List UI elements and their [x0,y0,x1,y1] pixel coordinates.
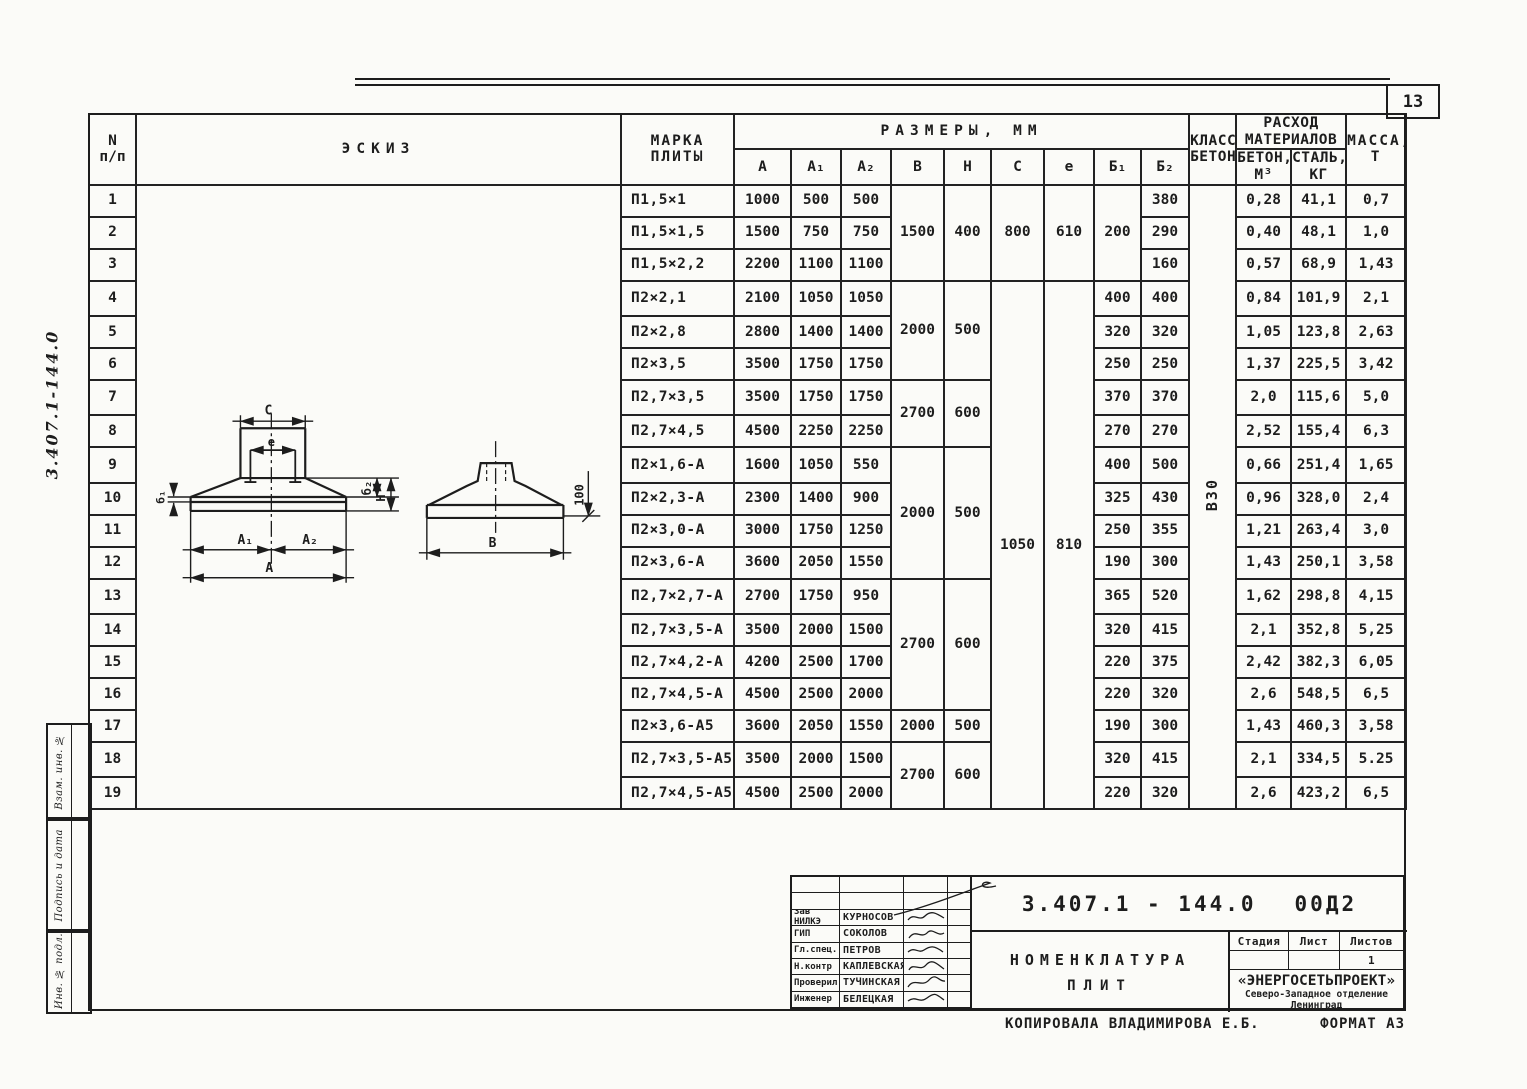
cell-b2: 375 [1141,646,1189,678]
signature-scribble [906,943,946,957]
cell-b1: 370 [1094,380,1141,415]
stamp-role: Проверил [792,975,840,991]
cell-concrete: 2,1 [1236,742,1291,777]
stamp-role: Н.контр [792,959,840,975]
dim-label-b2: б₂ [360,481,374,495]
cell-a1: 1400 [791,483,841,515]
cell-steel: 548,5 [1291,678,1346,710]
cell-mark: П2,7×4,5-А5 [621,777,734,809]
cell-a2: 2000 [841,678,891,710]
document-number: 3.407.1 - 144.0 00Д2 [972,877,1407,932]
cell-a2: 1550 [841,710,891,742]
cell-mark: П2,7×4,2-А [621,646,734,678]
cell-mark: П2,7×4,5 [621,415,734,447]
cell-h-merged: 600 [944,742,991,809]
table-row: 1 [89,185,1406,217]
col-header-steel: СТАЛЬ,КГ [1291,149,1346,184]
col-header-b: В [891,149,944,184]
cell-b1: 270 [1094,415,1141,447]
cell-a1: 1100 [791,249,841,281]
cell-mass: 1,65 [1346,447,1406,482]
top-trim-line [355,78,1390,86]
cell-n: 5 [89,316,136,348]
col-header-a1: А₁ [791,149,841,184]
cell-steel: 352,8 [1291,614,1346,646]
col-header-dimensions: РАЗМЕРЫ, ММ [734,114,1189,149]
cell-b2: 300 [1141,547,1189,579]
cell-mark: П2,7×3,5-А [621,614,734,646]
stamp-name: БЕЛЕЦКАЯ [840,992,904,1008]
cell-mass: 6,5 [1346,678,1406,710]
cell-steel: 115,6 [1291,380,1346,415]
cell-c-merged: 1050 [991,281,1044,810]
cell-n: 10 [89,483,136,515]
cell-a: 4200 [734,646,791,678]
cell-a2: 1500 [841,742,891,777]
cell-h-merged: 600 [944,380,991,447]
cell-b2: 415 [1141,742,1189,777]
cell-a: 1600 [734,447,791,482]
cell-a: 4500 [734,415,791,447]
cell-b2: 320 [1141,678,1189,710]
cell-concrete: 2,42 [1236,646,1291,678]
sheet-value [1289,951,1340,969]
cell-concrete: 2,6 [1236,777,1291,809]
cell-concrete: 1,43 [1236,547,1291,579]
cell-a1: 1050 [791,447,841,482]
cell-mass: 3,42 [1346,348,1406,380]
cell-mark: П2×3,6-А [621,547,734,579]
cell-concrete: 1,21 [1236,515,1291,547]
cell-mass: 3,58 [1346,547,1406,579]
cell-steel: 460,3 [1291,710,1346,742]
title-block: Зав НИЛКЭ КУРНОСОВ ГИП СОКОЛОВ Гл.спец. … [790,875,1405,1010]
cell-a2: 1100 [841,249,891,281]
col-header-a2: А₂ [841,149,891,184]
header-row-1: Nп/п ЭСКИЗ МАРКАПЛИТЫ РАЗМЕРЫ, ММ КЛАССБ… [89,114,1406,149]
signature-scribble [906,976,946,990]
cell-a1: 750 [791,217,841,249]
signature-flourish [892,877,1012,917]
cell-a2: 500 [841,185,891,217]
organization: «ЭНЕРГОСЕТЬПРОЕКТ» Северо-Западное отдел… [1230,970,1403,1014]
title-line-2: ПЛИТ [1067,978,1133,994]
cell-a: 1500 [734,217,791,249]
cell-a2: 1400 [841,316,891,348]
cell-a2: 750 [841,217,891,249]
cell-mass: 5,25 [1346,614,1406,646]
dim-label-b: В [489,536,497,551]
cell-concrete: 0,84 [1236,281,1291,316]
cell-concrete: 2,52 [1236,415,1291,447]
cell-a1: 1750 [791,579,841,614]
cell-a1: 2500 [791,777,841,809]
margin-label: Инв. № подл. [54,933,65,1009]
cell-concrete-class: В30 [1189,185,1236,810]
cell-n: 15 [89,646,136,678]
cell-b2: 400 [1141,281,1189,316]
cell-b1: 325 [1094,483,1141,515]
cell-mark: П2×2,3-А [621,483,734,515]
cell-b1: 250 [1094,515,1141,547]
cell-b-merged: 2000 [891,710,944,742]
cell-mark: П2,7×3,5-А5 [621,742,734,777]
cell-a1: 2250 [791,415,841,447]
cell-steel: 263,4 [1291,515,1346,547]
cell-steel: 382,3 [1291,646,1346,678]
cell-n: 3 [89,249,136,281]
stamp-name: СОКОЛОВ [840,926,904,942]
stamp-role: ГИП [792,926,840,942]
cell-a: 2100 [734,281,791,316]
cell-b2: 160 [1141,249,1189,281]
drawing-title: НОМЕНКЛАТУРА ПЛИТ [972,932,1230,1012]
cell-steel: 250,1 [1291,547,1346,579]
cell-h-merged: 500 [944,710,991,742]
margin-label: Подпись и дата [54,829,65,922]
col-header-materials: РАСХОДМАТЕРИАЛОВ [1236,114,1346,149]
stamp-role: Зав НИЛКЭ [792,910,840,926]
cell-steel: 68,9 [1291,249,1346,281]
cell-n: 17 [89,710,136,742]
cell-a1: 2000 [791,614,841,646]
col-header-b1: Б₁ [1094,149,1141,184]
cell-steel: 41,1 [1291,185,1346,217]
cell-a2: 1500 [841,614,891,646]
signature-scribble [906,992,946,1006]
stamp-role: Инженер [792,992,840,1008]
cell-a1: 2500 [791,646,841,678]
cell-concrete: 1,05 [1236,316,1291,348]
dimension-lines-front [168,415,399,582]
cell-n: 12 [89,547,136,579]
cell-a: 4500 [734,777,791,809]
signature-scribble [906,960,946,974]
cell-b-merged: 2700 [891,380,944,447]
cell-a: 2800 [734,316,791,348]
cell-b2: 500 [1141,447,1189,482]
col-header-c: С [991,149,1044,184]
cell-concrete: 2,0 [1236,380,1291,415]
cell-b-merged: 2000 [891,281,944,380]
cell-h-merged: 400 [944,185,991,281]
cell-mass: 2,1 [1346,281,1406,316]
cell-n: 1 [89,185,136,217]
cell-b2: 520 [1141,579,1189,614]
stage-sheet-block: Стадия Лист Листов 1 «ЭНЕРГОСЕТЬПРОЕКТ» … [1230,932,1403,1008]
cell-a: 3600 [734,710,791,742]
cell-b2: 355 [1141,515,1189,547]
title-line-1: НОМЕНКЛАТУРА [1010,951,1190,969]
margin-box-podpis: Подпись и дата [46,817,92,933]
cell-mass: 5.25 [1346,742,1406,777]
cell-n: 19 [89,777,136,809]
cell-e-merged: 610 [1044,185,1094,281]
cell-a2: 1750 [841,348,891,380]
cell-a: 3500 [734,742,791,777]
cell-b-merged: 2700 [891,742,944,809]
cell-steel: 48,1 [1291,217,1346,249]
cell-b-merged: 2000 [891,447,944,578]
cell-n: 18 [89,742,136,777]
cell-h-merged: 600 [944,579,991,710]
dim-label-a1: А₁ [237,533,253,548]
page-number: 13 [1403,92,1423,112]
cell-concrete: 1,62 [1236,579,1291,614]
cell-steel: 123,8 [1291,316,1346,348]
cell-mass: 3,0 [1346,515,1406,547]
cell-b2: 290 [1141,217,1189,249]
cell-mark: П2×1,6-А [621,447,734,482]
cell-n: 16 [89,678,136,710]
cell-a2: 900 [841,483,891,515]
cell-b1: 220 [1094,678,1141,710]
sheets-value: 1 [1340,951,1403,969]
margin-box-vzam: Взам. инв. № [46,723,92,821]
col-header-h: Н [944,149,991,184]
cell-b1: 220 [1094,777,1141,809]
cell-mark: П2×2,1 [621,281,734,316]
cell-concrete: 1,43 [1236,710,1291,742]
cell-a: 2700 [734,579,791,614]
cell-a2: 1700 [841,646,891,678]
cell-mass: 6,3 [1346,415,1406,447]
cell-h-merged: 500 [944,281,991,380]
cell-a1: 2000 [791,742,841,777]
bottom-caption: КОПИРОВАЛА ВЛАДИМИРОВА Е.Б. ФОРМАТ А3 [1005,1016,1405,1032]
cell-concrete: 0,28 [1236,185,1291,217]
col-header-e: е [1044,149,1094,184]
cell-b2: 380 [1141,185,1189,217]
cell-mark: П2×3,0-А [621,515,734,547]
cell-mass: 2,4 [1346,483,1406,515]
col-header-concrete-class: КЛАССБЕТОНА [1189,114,1236,185]
org-name: «ЭНЕРГОСЕТЬПРОЕКТ» [1238,973,1395,989]
col-header-mass: МАССА,Т [1346,114,1406,185]
cell-mass: 6,5 [1346,777,1406,809]
cell-b2: 370 [1141,380,1189,415]
sheets-header: Листов [1340,932,1403,950]
cell-a2: 2000 [841,777,891,809]
cell-mass: 0,7 [1346,185,1406,217]
cell-b1: 250 [1094,348,1141,380]
cell-b1: 190 [1094,710,1141,742]
cell-mass: 3,58 [1346,710,1406,742]
cell-a: 3600 [734,547,791,579]
cell-concrete: 2,6 [1236,678,1291,710]
stamp-name: ПЕТРОВ [840,943,904,959]
copied-by: КОПИРОВАЛА ВЛАДИМИРОВА Е.Б. [1005,1016,1260,1032]
stamp-role: Гл.спец. [792,943,840,959]
cell-steel: 298,8 [1291,579,1346,614]
cell-b1: 400 [1094,281,1141,316]
cell-mark: П2×2,8 [621,316,734,348]
stage-value [1230,951,1289,969]
cell-n: 7 [89,380,136,415]
dim-label-b1: б₁ [155,490,168,503]
col-header-number: Nп/п [89,114,136,185]
cell-a: 2200 [734,249,791,281]
cell-a: 1000 [734,185,791,217]
cell-mass: 1,0 [1346,217,1406,249]
doc-number-text: 3.407.1 - 144.0 [1022,892,1257,916]
cell-concrete: 0,96 [1236,483,1291,515]
nomenclature-table: Nп/п ЭСКИЗ МАРКАПЛИТЫ РАЗМЕРЫ, ММ КЛАССБ… [88,113,1407,810]
cell-concrete: 1,37 [1236,348,1291,380]
cell-a1: 2050 [791,547,841,579]
dim-label-a2: А₂ [302,533,318,548]
margin-box-inv: Инв. № подл. [46,929,92,1014]
cell-mark: П2×3,6-А5 [621,710,734,742]
cell-b2: 430 [1141,483,1189,515]
cell-mark: П1,5×2,2 [621,249,734,281]
cell-a2: 1750 [841,380,891,415]
cell-b1-merged: 200 [1094,185,1141,281]
cell-n: 9 [89,447,136,482]
cell-b2: 270 [1141,415,1189,447]
cell-n: 2 [89,217,136,249]
cell-a2: 1550 [841,547,891,579]
scanned-drawing-sheet: 13 3.407.1-144.0 Взам. инв. № Подпись и … [0,0,1527,1089]
cell-b1: 320 [1094,614,1141,646]
cell-steel: 155,4 [1291,415,1346,447]
cell-b2: 320 [1141,316,1189,348]
cell-mark: П1,5×1 [621,185,734,217]
cell-a1: 1400 [791,316,841,348]
cell-a2: 2250 [841,415,891,447]
cell-a1: 1750 [791,515,841,547]
cell-concrete: 0,57 [1236,249,1291,281]
cell-a1: 1050 [791,281,841,316]
cell-a: 3000 [734,515,791,547]
cell-b1: 220 [1094,646,1141,678]
dim-label-a: А [265,560,273,575]
dim-label-c: С [264,403,272,418]
stamp-name: КАПЛЕВСКАЯ [840,959,904,975]
cell-c-merged: 800 [991,185,1044,281]
cell-steel: 251,4 [1291,447,1346,482]
cell-a1: 2500 [791,678,841,710]
cell-b-merged: 1500 [891,185,944,281]
cell-b2: 250 [1141,348,1189,380]
dim-label-e: е [268,435,275,449]
cell-mark: П2,7×2,7-А [621,579,734,614]
cell-b1: 400 [1094,447,1141,482]
cell-mark: П2,7×4,5-А [621,678,734,710]
cell-n: 13 [89,579,136,614]
dim-label-h: Н [374,494,388,501]
cell-a: 3500 [734,348,791,380]
cell-mark: П2×3,5 [621,348,734,380]
cell-e-merged: 810 [1044,281,1094,810]
cell-a: 4500 [734,678,791,710]
cell-b-merged: 2700 [891,579,944,710]
stamp-name: ТУЧИНСКАЯ [840,975,904,991]
cell-steel: 101,9 [1291,281,1346,316]
cell-mass: 2,63 [1346,316,1406,348]
cell-b2: 300 [1141,710,1189,742]
cell-mark: П2,7×3,5 [621,380,734,415]
cell-concrete: 2,1 [1236,614,1291,646]
cell-b1: 365 [1094,579,1141,614]
cell-b2: 415 [1141,614,1189,646]
cell-a: 3500 [734,380,791,415]
org-branch: Северо-Западное отделение [1245,989,1388,1000]
cell-mass: 6,05 [1346,646,1406,678]
cell-n: 6 [89,348,136,380]
col-header-concrete: БЕТОН,М³ [1236,149,1291,184]
cell-steel: 423,2 [1291,777,1346,809]
cell-n: 4 [89,281,136,316]
cell-b1: 320 [1094,742,1141,777]
cell-b1: 190 [1094,547,1141,579]
col-header-b2: Б₂ [1141,149,1189,184]
cell-a2: 1250 [841,515,891,547]
cell-a1: 1750 [791,348,841,380]
dim-label-100: 100 [572,484,586,506]
sheet-header: Лист [1289,932,1340,950]
cell-mark: П1,5×1,5 [621,217,734,249]
cell-a: 3500 [734,614,791,646]
cell-h-merged: 500 [944,447,991,578]
col-header-sketch: ЭСКИЗ [136,114,621,185]
cell-n: 11 [89,515,136,547]
cell-n: 8 [89,415,136,447]
cell-a2: 550 [841,447,891,482]
doc-code-text: 00Д2 [1295,892,1358,916]
cell-a1: 1750 [791,380,841,415]
cell-concrete: 0,66 [1236,447,1291,482]
handwritten-doc-number: 3.407.1-144.0 [43,315,62,495]
cell-steel: 225,5 [1291,348,1346,380]
col-header-a: А [734,149,791,184]
cell-mass: 1,43 [1346,249,1406,281]
signature-scribble [906,927,946,941]
col-header-mark: МАРКАПЛИТЫ [621,114,734,185]
cell-b1: 320 [1094,316,1141,348]
cell-n: 14 [89,614,136,646]
cell-a1: 2050 [791,710,841,742]
format-label: ФОРМАТ А3 [1320,1016,1405,1032]
cell-a2: 950 [841,579,891,614]
cell-a: 2300 [734,483,791,515]
cell-concrete: 0,40 [1236,217,1291,249]
cell-steel: 328,0 [1291,483,1346,515]
cell-b2: 320 [1141,777,1189,809]
sketch-cell: С е б₁ б₂ Н А₁ А₂ А В 100 [136,185,621,810]
stage-header: Стадия [1230,932,1289,950]
org-city: Ленинград [1291,1000,1342,1011]
cell-mass: 4,15 [1346,579,1406,614]
plate-sketch: С е б₁ б₂ Н А₁ А₂ А В 100 [137,186,621,804]
cell-steel: 334,5 [1291,742,1346,777]
cell-mass: 5,0 [1346,380,1406,415]
margin-label: Взам. инв. № [54,734,65,810]
cell-a2: 1050 [841,281,891,316]
cell-a1: 500 [791,185,841,217]
